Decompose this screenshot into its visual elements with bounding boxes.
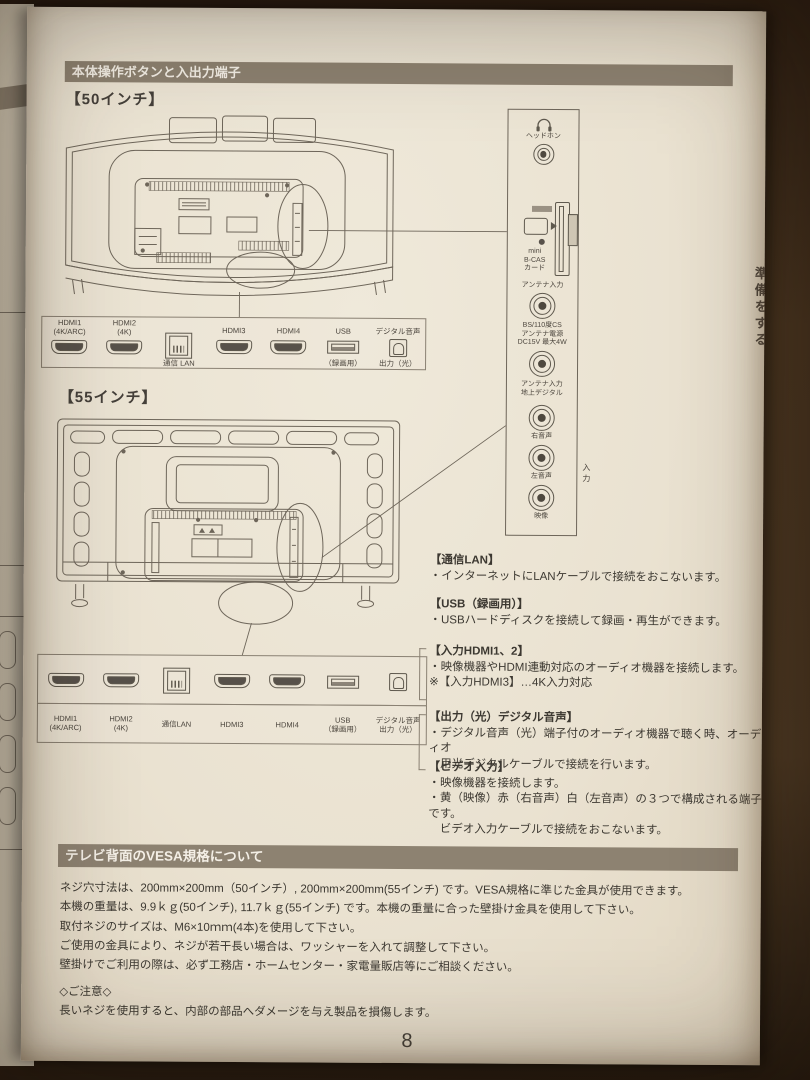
chapter-side-tab: 準備をする	[749, 266, 766, 349]
info-section-video: 【ビデオ入力】 ・映像機器を接続します。 ・黄（映像）赤（右音声）白（左音声）の…	[428, 760, 762, 840]
vesa-line: 壁掛けでご利用の際は、必ず工務店・ホームセンター・家電量販店等にご相談ください。	[59, 956, 749, 980]
port-hdmi3: HDMI3	[206, 318, 261, 368]
info-section-hdmi: 【入力HDMI1、2】 ・映像機器やHDMI連動対応のオーディオ機器を接続します…	[429, 644, 763, 693]
info-line: ※【入力HDMI3】…4K入力対応	[429, 675, 763, 693]
hdmi-port-icon	[270, 340, 306, 354]
port-label: HDMI4	[259, 705, 315, 743]
antenna-input-label: アンテナ入力	[508, 282, 578, 291]
tv-back-50-diagram	[56, 102, 402, 316]
callout-bracket	[419, 714, 426, 770]
port-label: HDMI3	[204, 705, 260, 743]
ports-row-55inch-connectors	[37, 654, 427, 706]
info-title: 【出力（光）デジタル音声】	[429, 710, 763, 728]
port-hdmi2: HDMI2 (4K)	[97, 317, 152, 367]
port-label: デジタル音声 出力（光）	[370, 706, 426, 744]
port-label: 通信LAN	[149, 705, 205, 743]
headphone-icon	[508, 118, 578, 132]
hdmi-port-icon	[106, 340, 142, 354]
section-header-vesa: テレビ背面のVESA規格について	[58, 844, 738, 871]
info-line: ・デジタル音声（光）端子付のオーディオ機器で聴く時、オーディオ	[429, 726, 763, 759]
headphone-label: ヘッドホン	[508, 133, 578, 142]
lan-port-icon	[163, 668, 190, 694]
hdmi-port-icon	[48, 673, 84, 687]
bcas-slot	[532, 206, 552, 212]
optical-port-icon	[389, 673, 407, 691]
port-hdmi1	[38, 671, 94, 687]
manual-page: 本体操作ボタンと入出力端子 【50インチ】	[21, 7, 766, 1065]
usb-port-icon	[327, 341, 359, 354]
info-title: 【ビデオ入力】	[429, 760, 763, 778]
hdmi-port-icon	[269, 674, 305, 688]
hdmi-port-icon	[214, 674, 250, 688]
info-line: ビデオ入力ケーブルで接続をおこないます。	[428, 822, 762, 840]
vesa-header-title: テレビ背面のVESA規格について	[65, 848, 263, 864]
lan-port-icon	[165, 332, 192, 358]
ports-row-50inch: HDMI1 (4K/ARC) HDMI2 (4K) 通信 LAN HDMI3 H…	[41, 316, 426, 370]
port-lan	[149, 666, 205, 694]
info-title: 【通信LAN】	[430, 553, 764, 571]
underlying-header-fragment	[0, 84, 27, 110]
page-number: 8	[385, 1030, 429, 1053]
bs-cs-power-label: BS/110度CS アンテナ電源 DC15V 最大4W	[507, 322, 577, 348]
terrestrial-antenna-jack	[507, 351, 577, 377]
bcas-dot	[539, 239, 545, 245]
optical-port-icon	[389, 339, 407, 357]
video-label: 映像	[506, 513, 576, 522]
port-hdmi2	[93, 671, 149, 687]
port-usb	[315, 673, 371, 688]
hdmi-port-icon	[103, 673, 139, 687]
port-optical	[371, 671, 427, 691]
port-label: HDMI1 (4K/ARC)	[38, 704, 94, 742]
port-usb: USB（録画用）	[316, 319, 371, 369]
vesa-body: ネジ穴寸法は、200mm×200mm（50インチ）, 200mm×200mm(5…	[59, 879, 750, 980]
audio-left-label: 左音声	[506, 473, 576, 482]
callout-bracket	[419, 648, 426, 700]
port-label: HDMI2 (4K)	[93, 704, 149, 742]
info-section-usb: 【USB（録画用）】 ・USBハードディスクを接続して録画・再生ができます。	[429, 597, 763, 630]
port-hdmi4	[260, 672, 316, 688]
info-title: 【入力HDMI1、2】	[429, 644, 763, 662]
headphone-jack	[508, 144, 578, 165]
port-hdmi1: HDMI1 (4K/ARC)	[42, 317, 97, 367]
port-hdmi4: HDMI4	[261, 318, 316, 368]
info-line: ・黄（映像）赤（右音声）白（左音声）の３つで構成される端子です。	[428, 791, 762, 824]
port-hdmi3	[204, 672, 260, 688]
video-jack	[506, 485, 576, 511]
audio-left-jack	[506, 445, 576, 471]
tv-back-55-diagram	[47, 404, 408, 631]
info-line: ・インターネットにLANケーブルで接続をおこないます。	[430, 569, 764, 587]
port-optical: デジタル音声出力（光）	[370, 319, 425, 369]
hdmi-port-icon	[216, 340, 252, 354]
bcas-card-outline	[524, 218, 548, 235]
section-header-io-terminals: 本体操作ボタンと入出力端子	[65, 61, 733, 86]
terrestrial-label: アンテナ入力 地上デジタル	[507, 381, 577, 398]
av-input-label: 入力	[582, 462, 590, 484]
ports-row-55inch-labels: HDMI1 (4K/ARC) HDMI2 (4K) 通信LAN HDMI3 HD…	[37, 703, 427, 745]
info-line: ・USBハードディスクを接続して録画・再生ができます。	[429, 613, 763, 631]
caution-line: 長いネジを使用すると、内部の部品へダメージを与え製品を損傷します。	[59, 1002, 436, 1020]
manual-page-photo: 本体操作ボタンと入出力端子 【50インチ】	[0, 0, 810, 1080]
section-header-title: 本体操作ボタンと入出力端子	[72, 64, 241, 80]
info-title: 【USB（録画用）】	[430, 597, 764, 615]
caution-title: ◇ご注意◇	[59, 983, 111, 999]
port-lan: 通信 LAN	[151, 318, 206, 368]
port-label: USB （録画用）	[315, 706, 371, 744]
bs-cs-antenna-jack	[507, 293, 577, 319]
info-section-lan: 【通信LAN】 ・インターネットにLANケーブルで接続をおこないます。	[430, 553, 764, 586]
side-connector-panel: ヘッドホン mini B-CAS カード アンテナ入力 BS/110度CS アン…	[505, 109, 580, 536]
bcas-card-guide	[568, 214, 578, 246]
audio-right-jack	[507, 405, 577, 431]
audio-right-label: 右音声	[507, 433, 577, 442]
hdmi-port-icon	[51, 340, 87, 354]
usb-port-icon	[327, 675, 359, 688]
